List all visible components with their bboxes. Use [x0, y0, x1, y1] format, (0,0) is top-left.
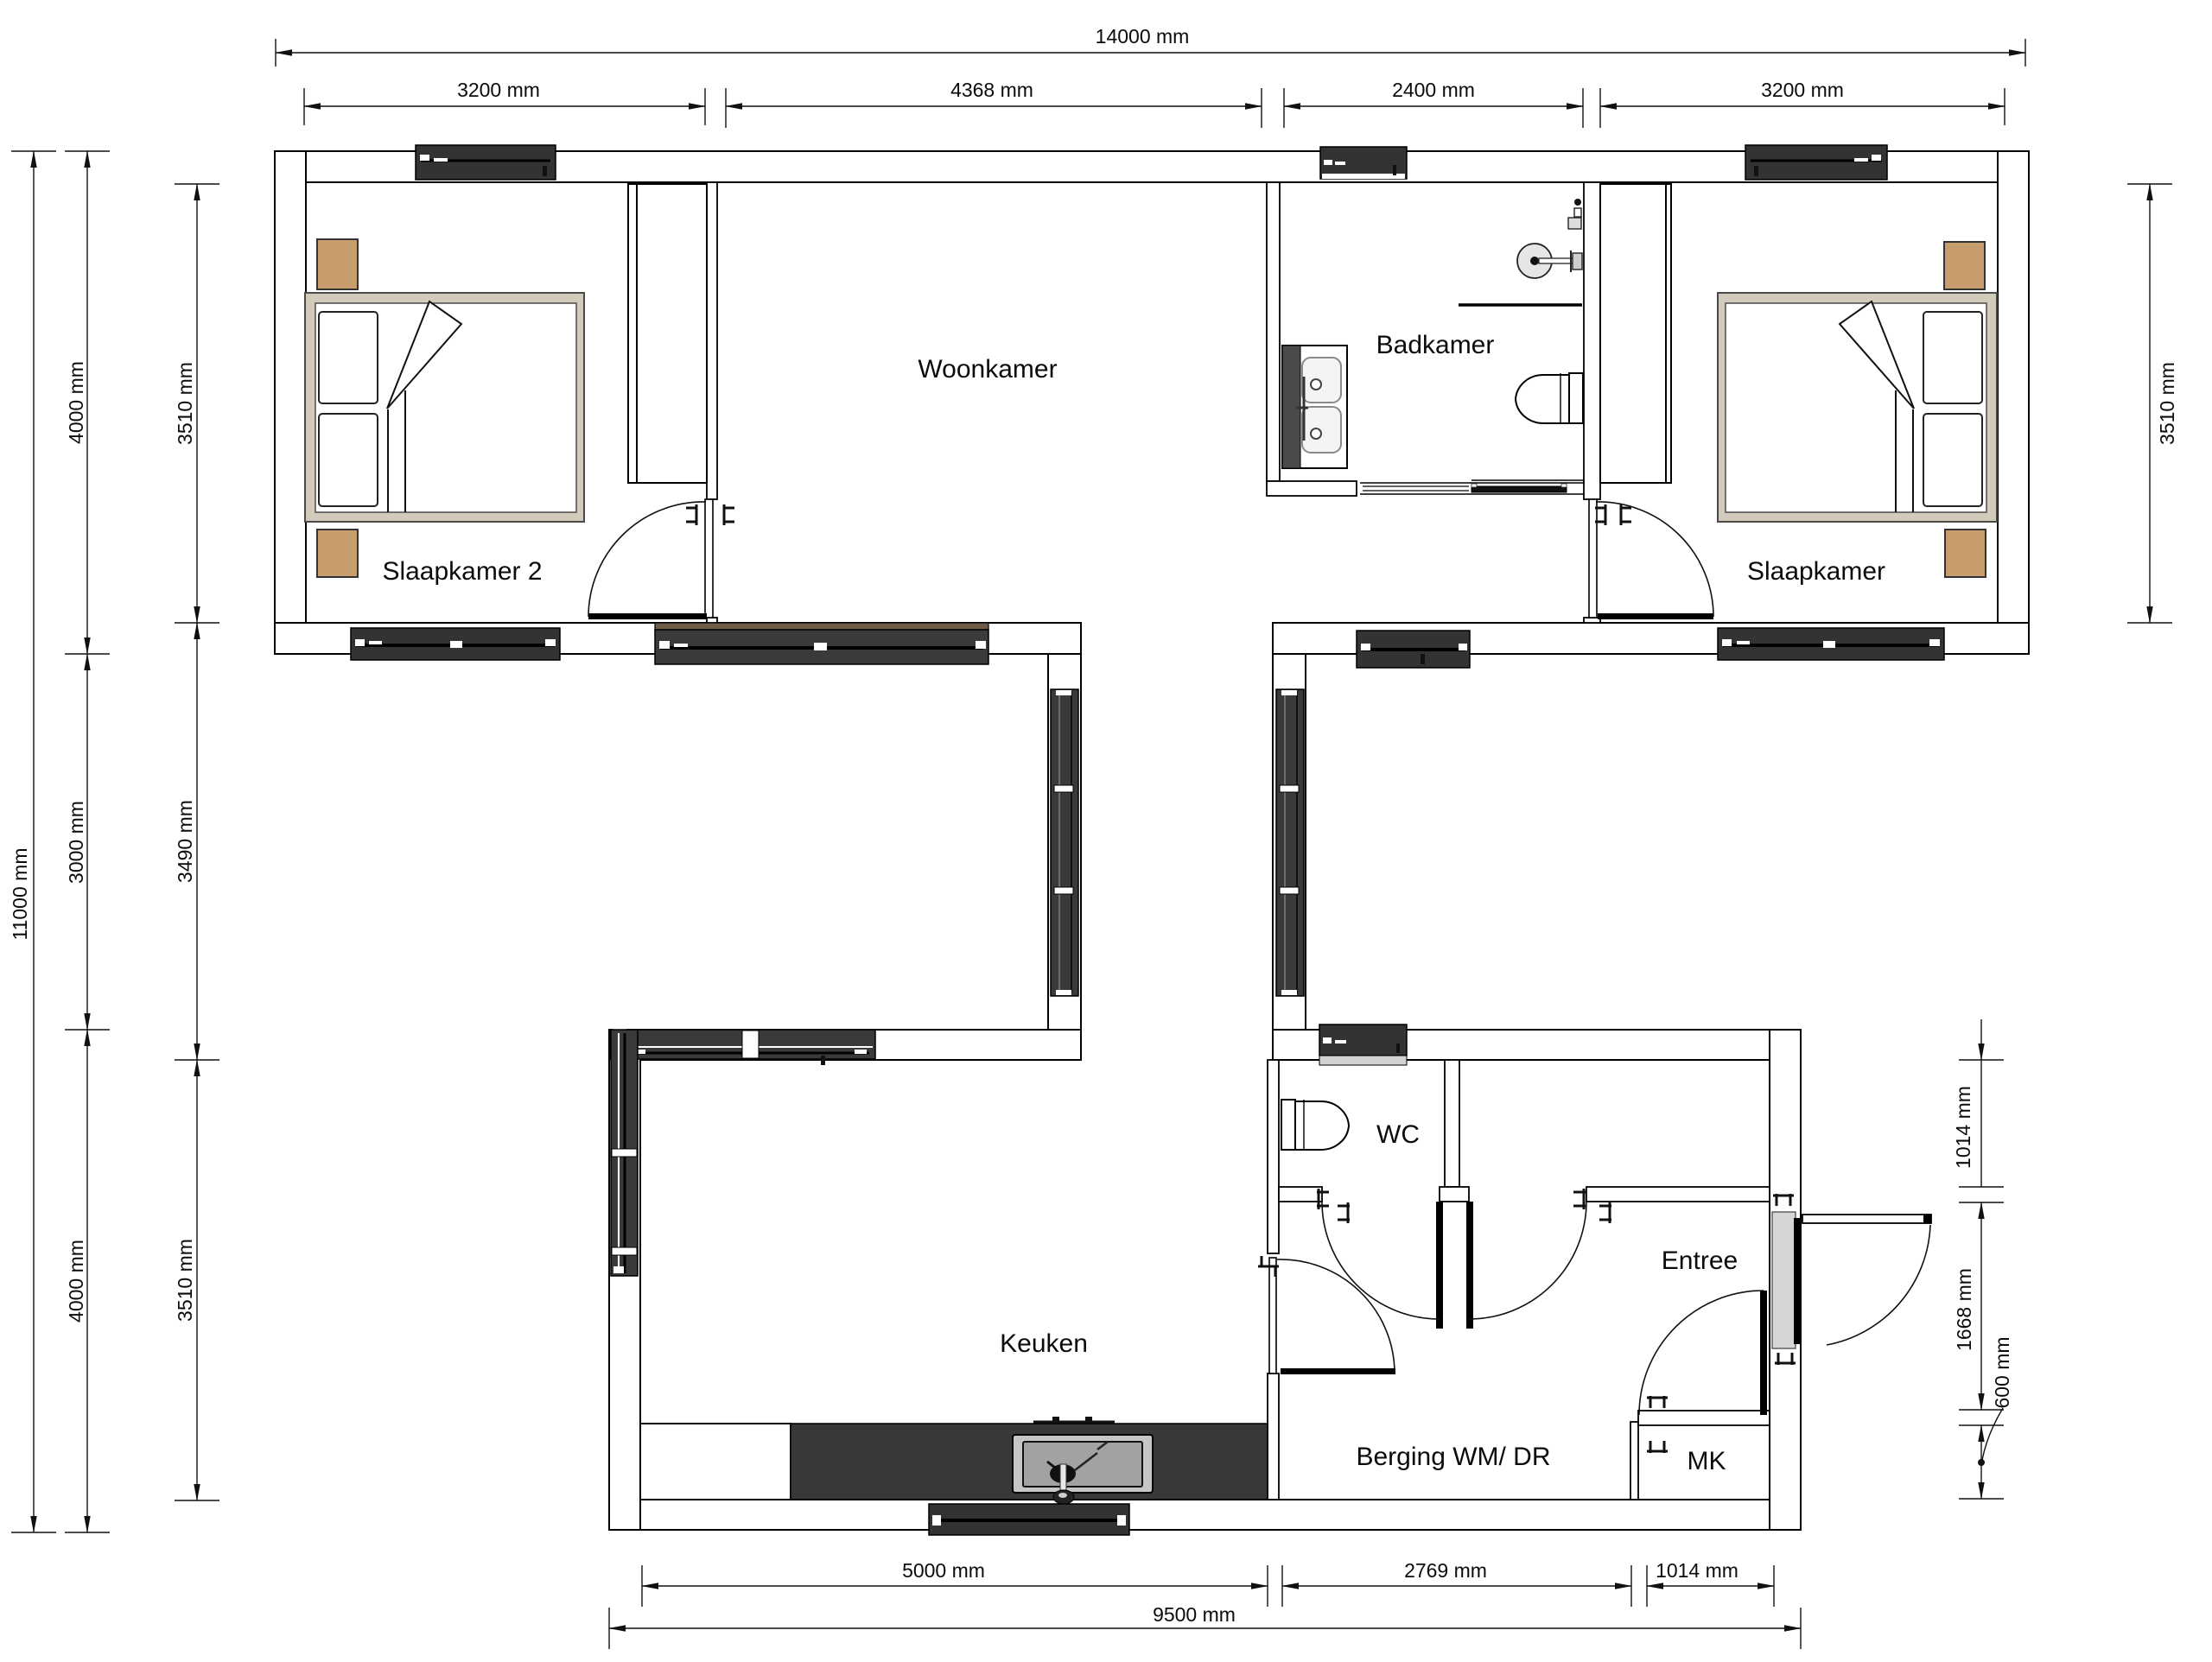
svg-text:1014 mm: 1014 mm — [1656, 1559, 1738, 1582]
svg-text:WC: WC — [1376, 1120, 1420, 1149]
svg-text:1014 mm: 1014 mm — [1952, 1086, 1974, 1169]
svg-text:11000 mm: 11000 mm — [9, 848, 31, 941]
svg-text:Woonkamer: Woonkamer — [918, 355, 1057, 384]
svg-text:4000 mm: 4000 mm — [65, 1240, 87, 1323]
svg-text:14000 mm: 14000 mm — [1096, 25, 1190, 48]
svg-text:2400 mm: 2400 mm — [1392, 79, 1475, 101]
svg-text:MK: MK — [1688, 1447, 1726, 1475]
svg-text:3200 mm: 3200 mm — [1761, 79, 1844, 101]
svg-text:Keuken: Keuken — [1000, 1329, 1088, 1358]
svg-text:Slaapkamer: Slaapkamer — [1747, 557, 1885, 586]
svg-text:5000 mm: 5000 mm — [902, 1559, 985, 1582]
svg-text:600 mm: 600 mm — [1991, 1336, 2013, 1408]
svg-text:1668 mm: 1668 mm — [1953, 1268, 1975, 1351]
svg-text:3490 mm: 3490 mm — [174, 800, 196, 883]
svg-text:3510 mm: 3510 mm — [174, 362, 196, 445]
svg-text:3200 mm: 3200 mm — [457, 79, 540, 101]
svg-text:3000 mm: 3000 mm — [65, 801, 87, 884]
svg-text:4368 mm: 4368 mm — [950, 79, 1033, 101]
svg-text:Badkamer: Badkamer — [1376, 331, 1495, 359]
svg-text:2769 mm: 2769 mm — [1404, 1559, 1487, 1582]
svg-text:Slaapkamer 2: Slaapkamer 2 — [382, 557, 542, 586]
svg-text:9500 mm: 9500 mm — [1153, 1603, 1236, 1626]
svg-text:3510 mm: 3510 mm — [174, 1239, 196, 1322]
svg-text:3510 mm: 3510 mm — [2156, 362, 2178, 445]
svg-text:Entree: Entree — [1662, 1246, 1738, 1275]
svg-text:Berging WM/ DR: Berging WM/ DR — [1356, 1443, 1550, 1471]
svg-text:4000 mm: 4000 mm — [65, 361, 87, 444]
